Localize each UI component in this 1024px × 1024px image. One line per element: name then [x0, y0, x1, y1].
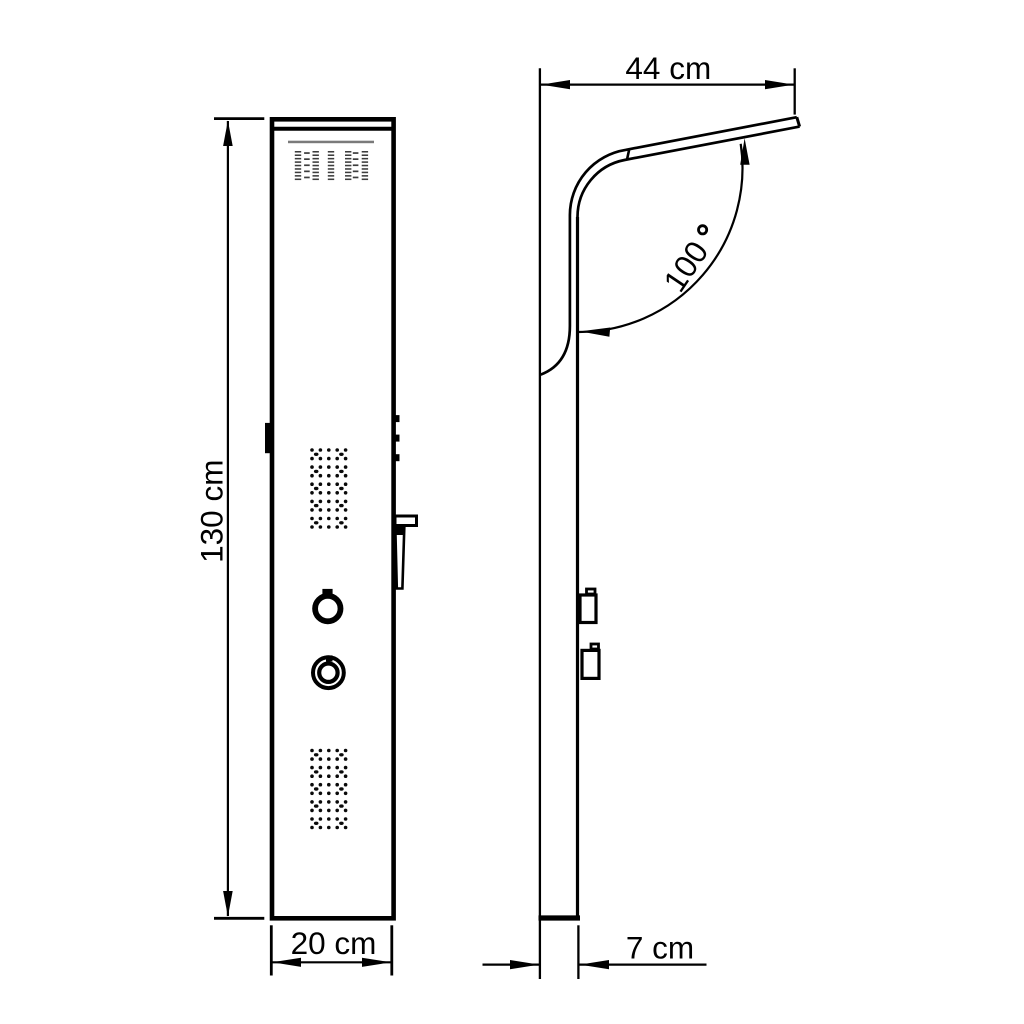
- svg-text:44 cm: 44 cm: [625, 50, 711, 86]
- svg-text:130 cm: 130 cm: [194, 460, 230, 563]
- svg-text:20 cm: 20 cm: [291, 925, 377, 961]
- svg-text:7 cm: 7 cm: [626, 929, 694, 965]
